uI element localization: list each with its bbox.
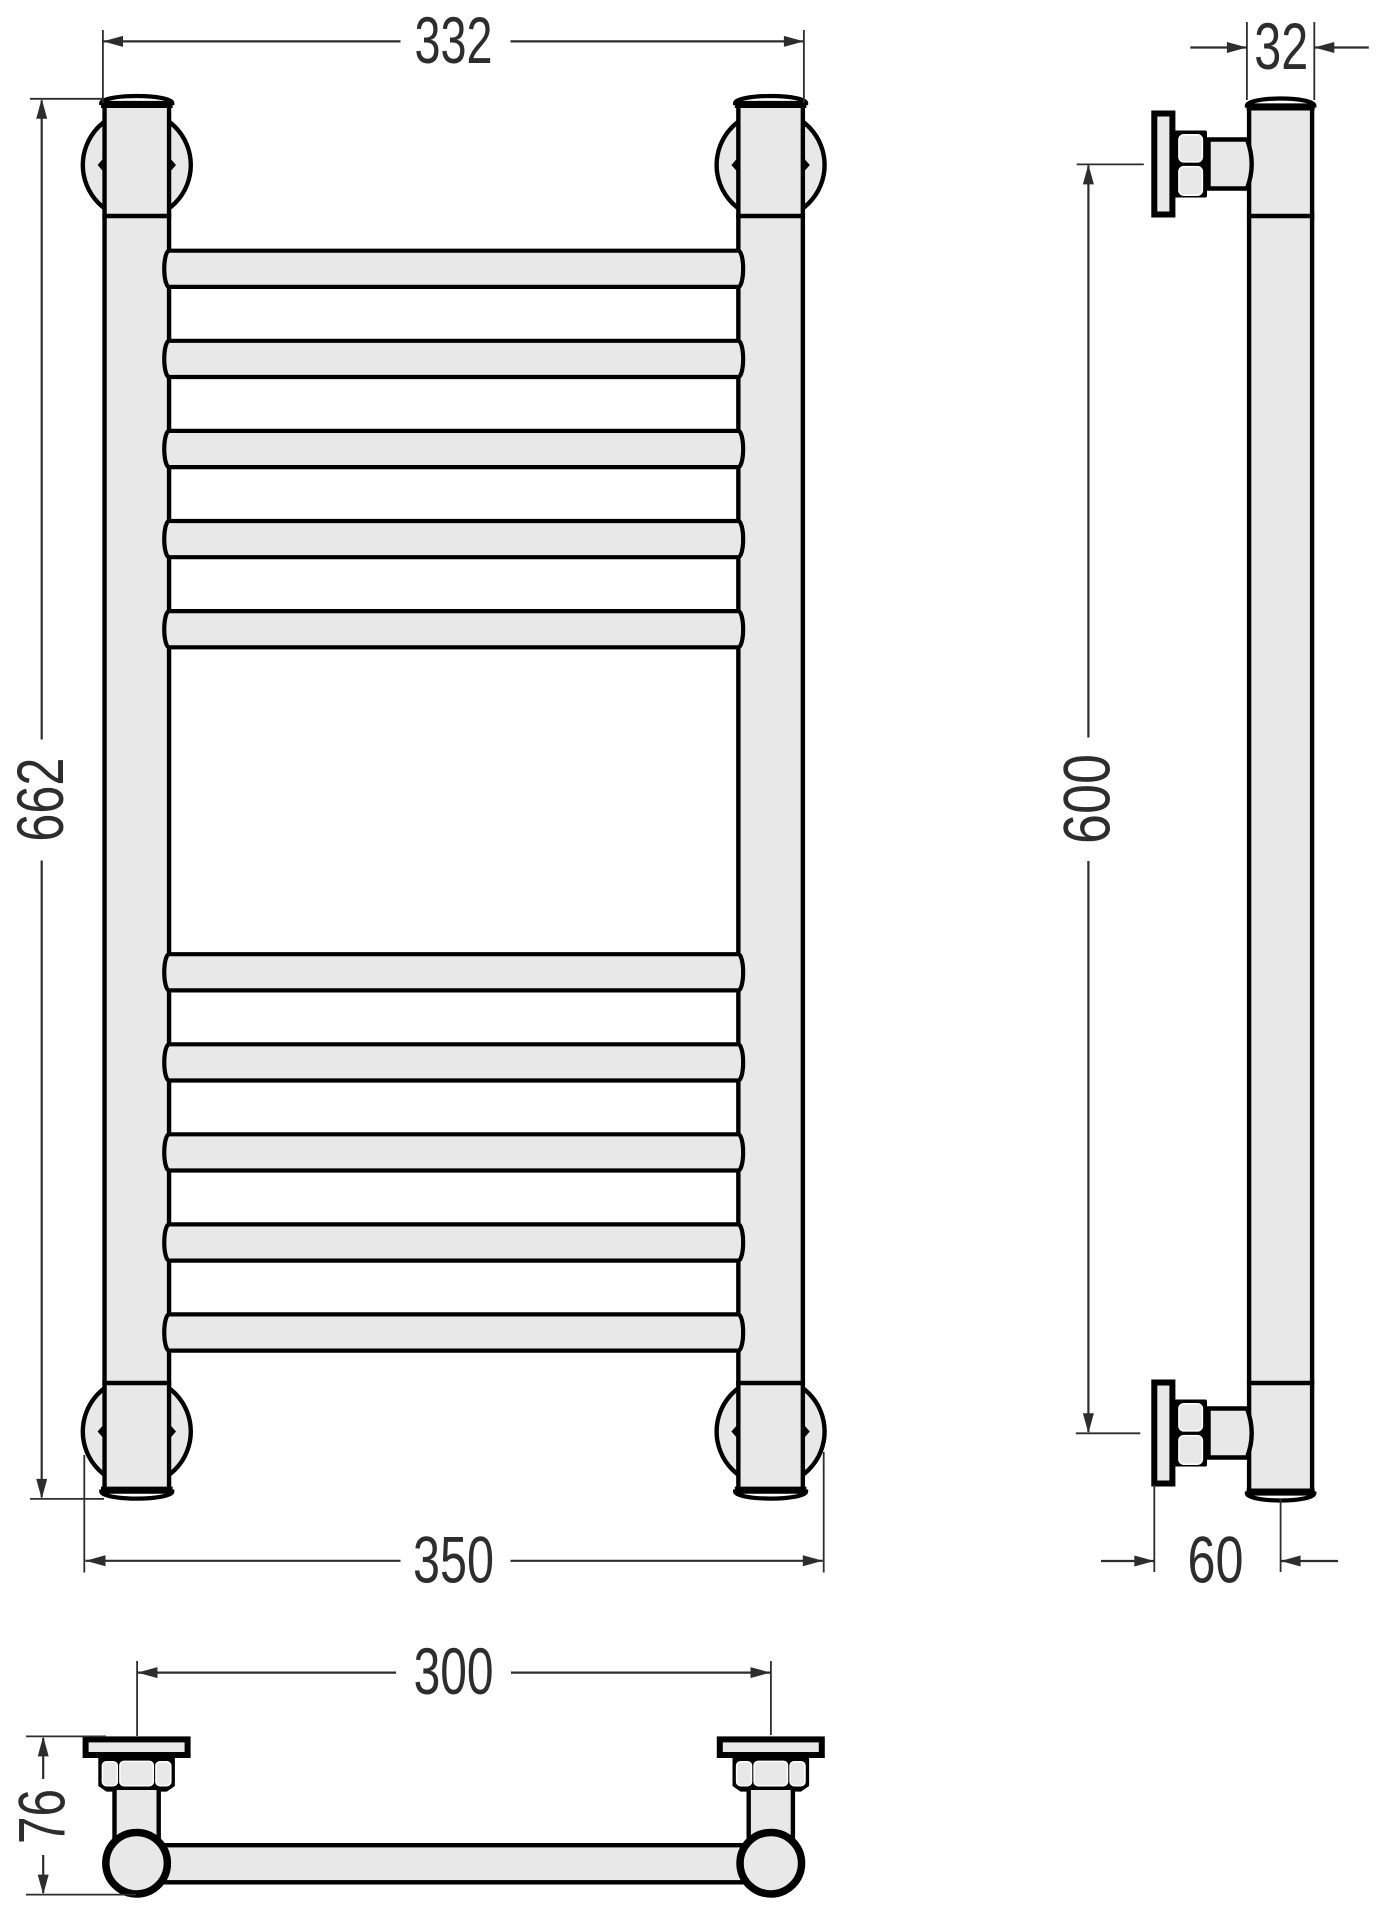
svg-text:60: 60	[1188, 1523, 1244, 1597]
svg-text:350: 350	[413, 1522, 494, 1596]
svg-text:76: 76	[5, 1789, 79, 1844]
svg-text:332: 332	[415, 3, 493, 77]
svg-text:662: 662	[3, 758, 77, 842]
svg-text:300: 300	[414, 1634, 494, 1708]
svg-text:600: 600	[1050, 754, 1124, 844]
svg-text:32: 32	[1254, 9, 1308, 83]
